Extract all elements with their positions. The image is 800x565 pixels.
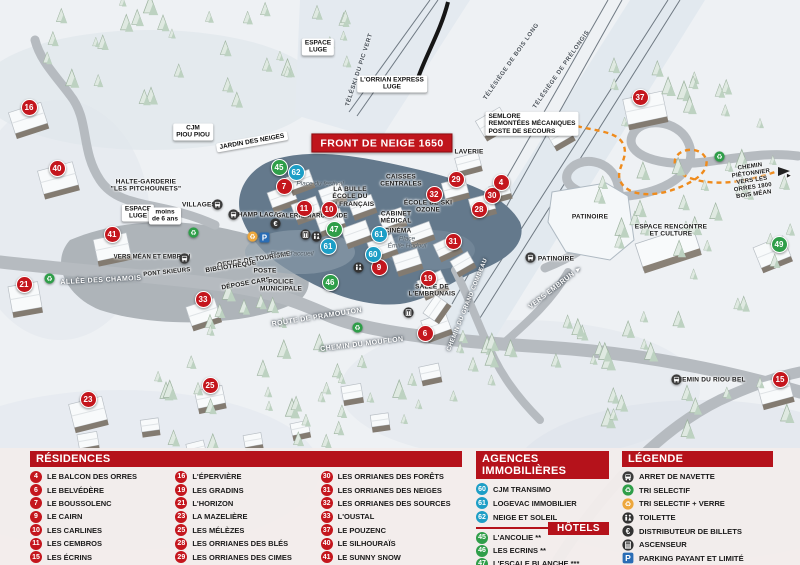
legend-item: 60CJM TRANSIMO <box>476 482 609 496</box>
badge-23: 23 <box>175 511 187 523</box>
legend-item-label: L'ÉPERVIÈRE <box>192 472 241 481</box>
legend-item-label: LE BOUSSOLENC <box>47 499 112 508</box>
svg-text:♻: ♻ <box>190 228 196 236</box>
hotels-list: 45L'ANCOLIE **46LES ECRINS **47L'ESCALE … <box>476 531 609 565</box>
hotels-header: HÔTELS <box>548 522 609 535</box>
svg-text:♻: ♻ <box>625 486 632 495</box>
legende-list: ARRET DE NAVETTE♻TRI SELECTIF♻TRI SELECT… <box>622 470 773 565</box>
map-label: OFFICE DE TOURISME <box>217 251 292 270</box>
map-label: ALLÉE DES CHAMOIS <box>60 275 141 287</box>
badge-31: 31 <box>321 484 333 496</box>
legend-item-label: TOILETTE <box>639 513 676 522</box>
map-marker-33: 33 <box>195 291 212 308</box>
legend-item-label: LES ORRIANES DES CIMES <box>192 553 292 562</box>
legend-item-label: TRI SELECTIF <box>639 486 690 495</box>
legend-item-label: LES ÉCRINS <box>47 553 92 562</box>
badge-41: 41 <box>321 551 333 563</box>
map-marker-25: 25 <box>202 377 219 394</box>
map-marker-31: 31 <box>445 233 462 250</box>
map-marker-23: 23 <box>80 391 97 408</box>
legend-item: 28LES ORRIANES DES BLÉS <box>175 537 316 550</box>
legend-item-label: LE BELVÉDÈRE <box>47 486 104 495</box>
legend-item: 4LE BALCON DES ORRES <box>30 470 171 483</box>
svg-text:♻: ♻ <box>46 274 52 282</box>
map-marker-6: 6 <box>417 325 434 342</box>
map-label: CABINET MÉDICAL <box>380 211 411 226</box>
svg-text:P: P <box>625 554 631 564</box>
legend-item: 31LES ORRIANES DES NEIGES <box>321 483 462 496</box>
map-label: LAVERIE <box>454 148 483 155</box>
map-label: DÉPOSE CARS <box>221 276 271 292</box>
svg-text:♻: ♻ <box>625 500 632 509</box>
bus-icon <box>622 471 634 483</box>
map-label: FRONT DE NEIGE 1650 <box>311 133 452 152</box>
legend-item-label: DISTRIBUTEUR DE BILLETS <box>639 527 742 536</box>
legend-item-label: L'ANCOLIE ** <box>493 533 541 542</box>
badge-15: 15 <box>30 551 42 563</box>
legend-item: PPARKING PAYANT ET LIMITÉ <box>622 552 773 565</box>
legend-item-label: TRI SELECTIF + VERRE <box>639 499 725 508</box>
map-marker-19: 19 <box>420 270 437 287</box>
badge-4: 4 <box>30 471 42 483</box>
badge-10: 10 <box>30 524 42 536</box>
map-marker-29: 29 <box>448 171 465 188</box>
legend-panel: RÉSIDENCES 4LE BALCON DES ORRES6LE BELVÉ… <box>0 448 800 565</box>
map-label: CHEMIN PIÉTONNIER VERS LES ORRES 1800 BO… <box>726 161 778 202</box>
legend-item: 37LE POUZENC <box>321 524 462 537</box>
map-label: ESPACE RENCONTRE ET CULTURE <box>635 224 707 239</box>
badge-37: 37 <box>321 524 333 536</box>
elevator-icon <box>300 229 311 240</box>
legend-item-label: LE SILHOURAÏS <box>338 539 396 548</box>
badge-29: 29 <box>175 551 187 563</box>
agences-header: AGENCES IMMOBILIÈRES <box>476 451 609 479</box>
legend-item-label: CJM TRANSIMO <box>493 485 551 494</box>
resort-map-page: FRONT DE NEIGE 1650L'ORRIAN EXPRESS LUGE… <box>0 0 800 565</box>
map-marker-46: 46 <box>322 274 339 291</box>
map-label: CHEMIN DU RIOU BEL <box>672 376 745 383</box>
map-label: GALERIE MARCHANDE <box>276 214 347 221</box>
map-marker-60: 60 <box>365 246 382 263</box>
legend-item-label: LES ORRIANES DES NEIGES <box>338 486 442 495</box>
badge-11: 11 <box>30 538 42 550</box>
map-marker-40: 40 <box>49 160 66 177</box>
legend-item: ARRET DE NAVETTE <box>622 470 773 484</box>
map-label: POLICE MUNICIPALE <box>260 279 302 294</box>
recycle-verre-icon: ♻ <box>247 231 258 242</box>
map-label: CHEMIN DU MOUFLON <box>320 336 404 354</box>
recycle-icon: ♻ <box>714 151 725 162</box>
map-label: Place d'accueil <box>270 250 313 257</box>
map-marker-32: 32 <box>426 186 443 203</box>
map-label: ROUTE DE PRAMOUTON <box>271 307 362 329</box>
map-label: CINÉMA <box>385 227 412 234</box>
map-marker-4: 4 <box>493 174 510 191</box>
map-marker-62: 62 <box>288 164 305 181</box>
badge-30: 30 <box>321 471 333 483</box>
agences-list: 60CJM TRANSIMO61LOGEVAC IMMOBILIER62NEIG… <box>476 482 609 524</box>
legend-item: 61LOGEVAC IMMOBILIER <box>476 496 609 510</box>
map-label: CAISSES CENTRALES <box>380 174 422 189</box>
map-marker-61: 61 <box>320 238 337 255</box>
legend-item: 21L'HORIZON <box>175 497 316 510</box>
bus-icon <box>525 252 536 263</box>
map-label: TÉLÉSIÈGE DE BOIS LONG <box>483 22 542 101</box>
map-label: L'ORRIAN EXPRESS LUGE <box>357 76 427 93</box>
map-label: TÉLÉSKI DU PIC VERT <box>345 33 375 108</box>
badge-21: 21 <box>175 497 187 509</box>
legend-item-label: ARRET DE NAVETTE <box>639 472 715 481</box>
map-label: Place du festival <box>296 180 343 187</box>
map-label: SEMLORE REMONTÉES MÉCANIQUES POSTE DE SE… <box>485 112 578 136</box>
map-label: Place Émile Hodoul <box>388 236 427 251</box>
hotels-divider: HÔTELS <box>476 527 609 529</box>
recycle-verre-icon: ♻ <box>622 498 634 510</box>
badge-45: 45 <box>476 532 488 544</box>
legend-item: ♻TRI SELECTIF + VERRE <box>622 497 773 511</box>
svg-text:P: P <box>261 233 266 242</box>
legend-item-label: LES ECRINS ** <box>493 546 546 555</box>
legend-item-label: LES ORRIANES DES BLÉS <box>192 539 288 548</box>
parking-icon: P <box>622 552 634 564</box>
section-agences: AGENCES IMMOBILIÈRES 60CJM TRANSIMO61LOG… <box>476 451 609 565</box>
map-label: BIBLIOTHÈQUE <box>205 259 257 274</box>
bus-icon <box>228 209 239 220</box>
legend-item-label: LES MÉLÈZES <box>192 526 244 535</box>
badge-19: 19 <box>175 484 187 496</box>
residences-header: RÉSIDENCES <box>30 451 462 467</box>
section-legende: LÉGENDE ARRET DE NAVETTE♻TRI SELECTIF♻TR… <box>622 451 773 565</box>
elevator-icon <box>403 307 414 318</box>
legend-item: 33L'OUSTAL <box>321 510 462 523</box>
legend-item: 9LE CAIRN <box>30 510 171 523</box>
legend-item-label: LES ORRIANES DES FORÊTS <box>338 472 444 481</box>
legend-item: 19LES GRADINS <box>175 483 316 496</box>
legend-item: 41LE SUNNY SNOW <box>321 550 462 563</box>
map-marker-61: 61 <box>371 226 388 243</box>
legend-item: 23LA MAZELIÈRE <box>175 510 316 523</box>
legend-item-label: LES GRADINS <box>192 486 243 495</box>
map-marker-49: 49 <box>771 236 788 253</box>
recycle-icon: ♻ <box>622 484 634 496</box>
legend-item: ASCENSEUR <box>622 538 773 552</box>
legend-item: 46LES ECRINS ** <box>476 544 609 557</box>
map-marker-15: 15 <box>772 371 789 388</box>
legend-item: €DISTRIBUTEUR DE BILLETS <box>622 524 773 538</box>
parking-icon: P <box>259 232 270 243</box>
legend-item: TOILETTE <box>622 511 773 525</box>
bus-icon <box>179 253 190 264</box>
map-label: ESPACE LUGE <box>122 205 154 222</box>
svg-text:€: € <box>626 527 631 536</box>
legend-item: ♻TRI SELECTIF <box>622 484 773 498</box>
legend-item-label: L'OUSTAL <box>338 512 375 521</box>
map-label: HALTE-GARDERIE "LES PITCHOUNETS" <box>111 179 182 194</box>
badge-33: 33 <box>321 511 333 523</box>
map-label: PONT SKIEURS <box>143 267 191 279</box>
map-label: ESPACE LUGE <box>302 39 334 56</box>
residences-list: 4LE BALCON DES ORRES6LE BELVÉDÈRE7LE BOU… <box>30 470 462 564</box>
badge-6: 6 <box>30 484 42 496</box>
badge-16: 16 <box>175 471 187 483</box>
legend-item-label: PARKING PAYANT ET LIMITÉ <box>639 554 744 563</box>
recycle-icon: ♻ <box>188 227 199 238</box>
legend-item: 47L'ESCALE BLANCHE *** <box>476 557 609 565</box>
badge-40: 40 <box>321 538 333 550</box>
map-marker-7: 7 <box>276 178 293 195</box>
legend-item: 25LES MÉLÈZES <box>175 524 316 537</box>
map-label: ► <box>786 172 793 179</box>
legend-item-label: LE POUZENC <box>338 526 386 535</box>
map-label: POSTE <box>253 267 276 274</box>
legend-item: 10LES CARLINES <box>30 524 171 537</box>
svg-text:€: € <box>273 219 277 228</box>
legend-item: 15LES ÉCRINS <box>30 550 171 563</box>
legend-item: 40LE SILHOURAÏS <box>321 537 462 550</box>
toilet-icon <box>622 512 634 524</box>
badge-60: 60 <box>476 483 488 495</box>
svg-text:♻: ♻ <box>249 232 255 240</box>
badge-61: 61 <box>476 497 488 509</box>
legend-item-label: LES ORRIANES DES SOURCES <box>338 499 451 508</box>
map-label: CHEMIN DU GRAND COMBEAU <box>446 258 490 353</box>
recycle-icon: ♻ <box>44 273 55 284</box>
badge-9: 9 <box>30 511 42 523</box>
recycle-icon: ♻ <box>352 322 363 333</box>
legend-item-label: LA MAZELIÈRE <box>192 512 247 521</box>
badge-7: 7 <box>30 497 42 509</box>
map-label: ÉCOLE DE SKI OZONE <box>404 200 452 215</box>
badge-25: 25 <box>175 524 187 536</box>
legend-item-label: LE BALCON DES ORRES <box>47 472 137 481</box>
legend-item: 29LES ORRIANES DES CIMES <box>175 550 316 563</box>
bus-icon <box>671 374 682 385</box>
legend-item-label: LES CEMBROS <box>47 539 102 548</box>
badge-28: 28 <box>175 538 187 550</box>
map-label: JARDIN DES NEIGES <box>216 131 288 153</box>
toilet-icon <box>353 262 364 273</box>
euro-icon: € <box>622 525 634 537</box>
badge-47: 47 <box>476 558 488 565</box>
legend-item: 6LE BELVÉDÈRE <box>30 483 171 496</box>
map-label: VERS EMBRUN ► <box>528 265 585 312</box>
legend-item-label: L'ESCALE BLANCHE *** <box>493 559 579 565</box>
badge-62: 62 <box>476 511 488 523</box>
legende-header: LÉGENDE <box>622 451 773 467</box>
euro-icon: € <box>270 218 281 229</box>
legend-item: 30LES ORRIANES DES FORÊTS <box>321 470 462 483</box>
map-marker-28: 28 <box>471 201 488 218</box>
legend-item: 7LE BOUSSOLENC <box>30 497 171 510</box>
map-marker-41: 41 <box>104 226 121 243</box>
bus-icon <box>212 199 223 210</box>
map-label: PATINOIRE <box>572 213 608 220</box>
map-label: CJM PIOU PIOU <box>173 124 213 141</box>
elevator-icon <box>622 539 634 551</box>
map-label: moins de 6 ans <box>149 208 181 225</box>
legend-item-label: LOGEVAC IMMOBILIER <box>493 499 577 508</box>
svg-text:♻: ♻ <box>716 152 722 160</box>
badge-32: 32 <box>321 497 333 509</box>
legend-item-label: NEIGE ET SOLEIL <box>493 513 557 522</box>
legend-item-label: LE SUNNY SNOW <box>338 553 401 562</box>
badge-46: 46 <box>476 545 488 557</box>
map-marker-16: 16 <box>21 99 38 116</box>
legend-item: 11LES CEMBROS <box>30 537 171 550</box>
map-marker-45: 45 <box>271 159 288 176</box>
legend-item: 32LES ORRIANES DES SOURCES <box>321 497 462 510</box>
toilet-icon <box>311 231 322 242</box>
map-label: PATINOIRE <box>538 255 574 262</box>
map-marker-10: 10 <box>321 201 338 218</box>
map-marker-11: 11 <box>296 200 313 217</box>
legend-item-label: L'HORIZON <box>192 499 233 508</box>
map-marker-21: 21 <box>16 276 33 293</box>
legend-item-label: LE CAIRN <box>47 512 82 521</box>
map-label: TÉLÉSIÈGE DE PRÉLONGIS <box>532 30 591 111</box>
map-marker-37: 37 <box>632 89 649 106</box>
legend-item-label: ASCENSEUR <box>639 540 687 549</box>
legend-item: 16L'ÉPERVIÈRE <box>175 470 316 483</box>
svg-text:♻: ♻ <box>354 323 360 331</box>
legend-item-label: LES CARLINES <box>47 526 102 535</box>
section-residences: RÉSIDENCES 4LE BALCON DES ORRES6LE BELVÉ… <box>30 451 462 564</box>
map-marker-47: 47 <box>326 221 343 238</box>
